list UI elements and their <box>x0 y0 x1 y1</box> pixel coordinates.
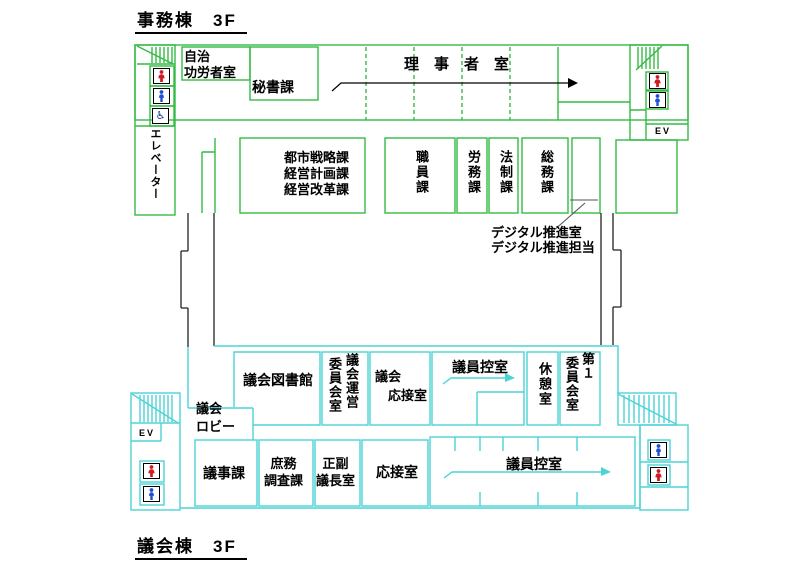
room-label-elevator: エレベーター <box>147 128 163 200</box>
stairs-icon-top-right <box>636 46 662 70</box>
floor-plan: 事務棟 3F 議会棟 3F 自治 功労者室 秘書課 理 事 者 室 エレベーター… <box>0 0 800 565</box>
room-label-gikai-toshokan: 議会図書館 <box>243 372 313 390</box>
room-label-hisho: 秘書課 <box>252 79 294 97</box>
stairs-icon-bottom-right <box>618 394 676 424</box>
female-restroom-icon <box>649 73 666 89</box>
room-label-shomu-chosa: 庶務 調査課 <box>264 456 303 490</box>
stairs-icon-top-left <box>137 46 175 64</box>
male-restroom-icon <box>153 88 170 104</box>
room-label-osetsu: 応接室 <box>376 464 418 482</box>
wheelchair-icon: ♿ <box>152 108 169 124</box>
room-label-romu: 労務課 <box>464 150 483 195</box>
male-restroom-icon <box>143 486 160 502</box>
room-label-ev-office: EV <box>655 126 671 136</box>
room-label-rijisha: 理 事 者 室 <box>404 56 509 75</box>
female-restroom-icon <box>153 68 170 84</box>
room-label-giji: 議事課 <box>203 465 245 483</box>
room-label-hosei: 法制課 <box>496 150 515 195</box>
female-restroom-icon <box>650 467 667 483</box>
room-label-giin-hikae-upper: 議員控室 <box>452 359 508 377</box>
room-label-kyukei: 休憩室 <box>535 362 554 407</box>
room-label-toshi-senryaku: 都市戦略課 経営計画課 経営改革課 <box>284 150 349 198</box>
room-label-ev-assembly: EV <box>139 428 155 438</box>
room-label-somu: 総務課 <box>537 150 556 195</box>
giin-hikae-upper-arrow <box>443 378 506 384</box>
room-label-gikai-lobby: 議会 ロビー <box>196 400 235 435</box>
female-restroom-icon <box>143 463 160 479</box>
rijisha-arrow <box>332 83 568 91</box>
room-label-shokuin: 職員課 <box>412 150 431 195</box>
room-label-jichi-korosha: 自治 功労者室 <box>184 49 236 82</box>
room-label-dai1-col: 第１ <box>578 352 597 380</box>
room-label-gikai-osetsu: 議会 応接室 <box>375 368 427 406</box>
room-label-gikai-unei-col: 議会運営 <box>342 353 361 409</box>
assembly-building-title: 議会棟 3F <box>135 532 247 560</box>
room-label-giin-hikae-lower: 議員控室 <box>506 456 562 474</box>
male-restroom-icon <box>649 92 666 108</box>
room-label-seifuku-gicho: 正副 議長室 <box>316 456 355 490</box>
male-restroom-icon <box>650 442 667 458</box>
stairs-icon-bottom-left <box>132 394 178 423</box>
office-building-title: 事務棟 3F <box>135 6 247 34</box>
room-label-digital: デジタル推進室 デジタル推進担当 <box>491 225 595 256</box>
